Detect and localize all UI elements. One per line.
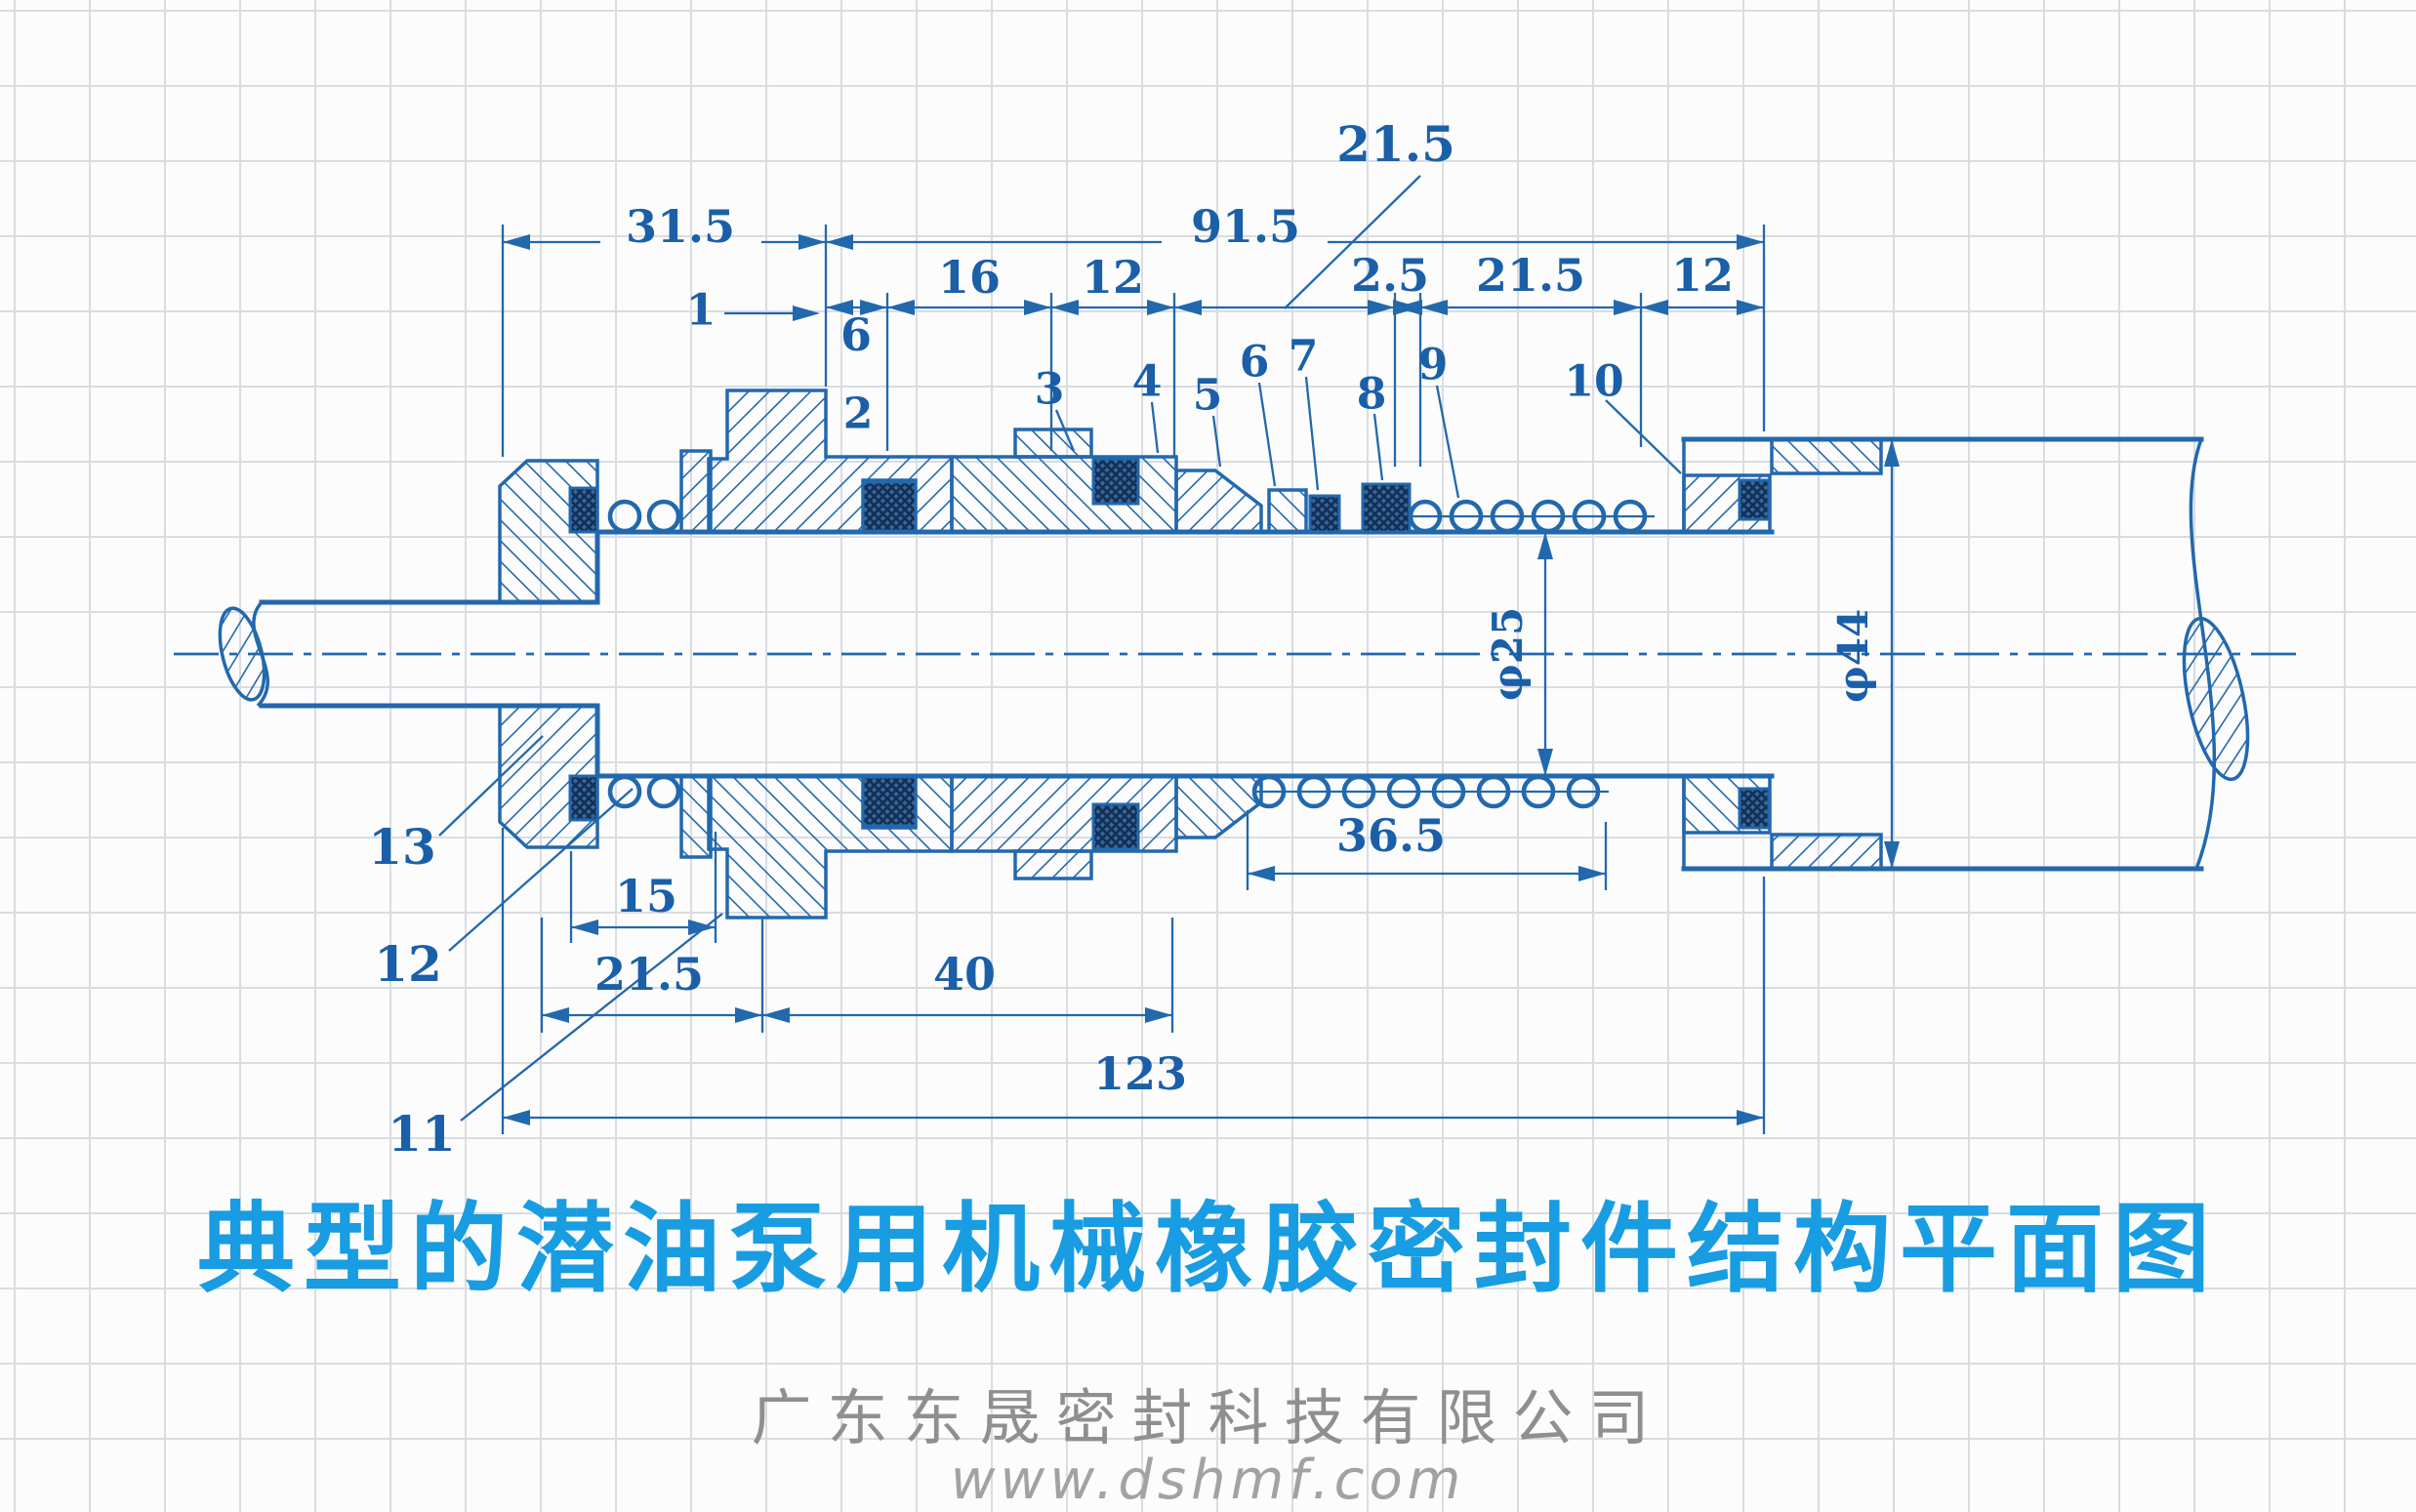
- seal-assembly-upper-half: [262, 390, 2201, 602]
- right-break: [2172, 439, 2260, 869]
- part-7: 7: [1289, 332, 1319, 382]
- part-9: 9: [1418, 341, 1449, 390]
- footer-company-name: 广东东晟密封科技有限公司: [0, 1369, 2416, 1456]
- sleeve-gland-rubber: [1740, 480, 1769, 519]
- part-8: 8: [1357, 370, 1387, 420]
- part-6: 6: [1240, 338, 1270, 388]
- dim-2-5: 2.5: [1351, 249, 1429, 302]
- dim-31-5: 31.5: [626, 200, 735, 253]
- seal-assembly-lower-half: [262, 706, 2201, 918]
- rubber-pocket: [863, 482, 916, 531]
- sleeve-wall-section: [1772, 439, 1881, 473]
- dim-21-5: 21.5: [1476, 249, 1585, 302]
- dim-12-a: 12: [1082, 251, 1144, 304]
- part-10: 10: [1564, 357, 1623, 407]
- rubber-seal-left: [570, 488, 597, 532]
- part-2: 2: [843, 389, 874, 439]
- dim-123: 123: [1093, 1047, 1187, 1100]
- part-12: 12: [374, 935, 442, 993]
- rubber-block-8: [1363, 484, 1410, 532]
- dim-21-5-leader: 21.5: [1336, 115, 1455, 173]
- page: { "page": { "caption": "典型的潜油泵用机械橡胶密封件结构…: [0, 0, 2416, 1511]
- footer-website: www.dshmf.com: [0, 1449, 2416, 1512]
- part-3: 3: [1035, 365, 1065, 415]
- upper-spring: [1411, 502, 1655, 531]
- rubber-ring: [1093, 459, 1138, 504]
- collar-washer: [681, 451, 711, 532]
- lower-spring: [1254, 777, 1609, 806]
- dim-sleeve-diameter: φ44: [1829, 609, 1877, 703]
- left-break: [212, 602, 272, 706]
- caption-title: 典型的潜油泵用机械橡胶密封件结构平面图: [0, 1169, 2416, 1311]
- dim-6: 6: [840, 308, 872, 361]
- dim-36-5: 36.5: [1336, 809, 1446, 862]
- dim-shaft-diameter: φ25: [1484, 607, 1532, 701]
- cup-seal: [1176, 470, 1261, 532]
- dim-12-b: 12: [1671, 249, 1734, 302]
- dim-40: 40: [933, 948, 996, 1001]
- dim-21-5-bottom: 21.5: [594, 948, 704, 1001]
- part-11: 11: [388, 1105, 456, 1163]
- part-13: 13: [368, 818, 436, 876]
- bellows-parts: [1269, 484, 1410, 532]
- part-5: 5: [1193, 371, 1223, 421]
- dim-15: 15: [615, 870, 677, 922]
- part-1: 1: [686, 286, 717, 336]
- dim-91-5: 91.5: [1191, 200, 1300, 253]
- mid-housing: [952, 457, 1176, 532]
- dim-16: 16: [938, 251, 1001, 304]
- part-4: 4: [1132, 357, 1163, 407]
